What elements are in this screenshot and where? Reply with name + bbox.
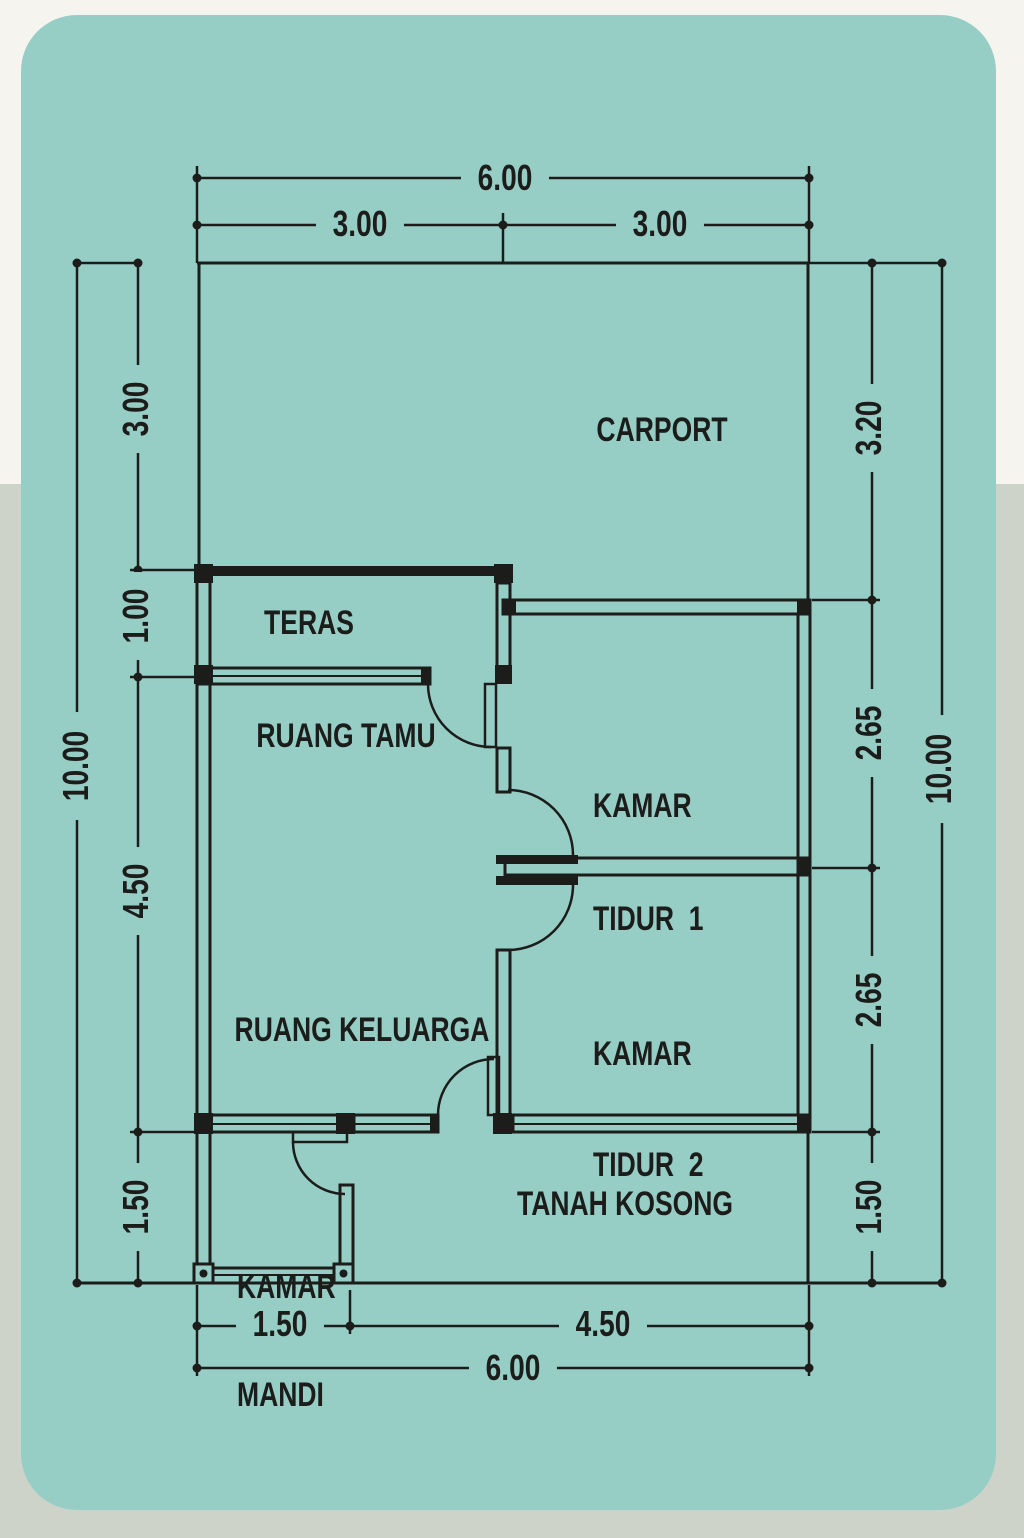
room-label-tanah-kosong: TANAH KOSONG xyxy=(486,1185,763,1223)
dim-right-c: 2.65 xyxy=(849,956,889,1044)
dim-bottom-left: 1.50 xyxy=(236,1304,324,1344)
dim-left-total: 10.00 xyxy=(56,712,96,820)
room-label-ruang-tamu: RUANG TAMU xyxy=(231,717,461,755)
dim-left-b: 1.00 xyxy=(116,572,156,660)
dim-right-b: 2.65 xyxy=(849,689,889,777)
page: CARPORT TERAS RUANG TAMU KAMAR TIDUR 1 K… xyxy=(0,0,1024,1538)
room-label-teras: TERAS xyxy=(251,604,366,642)
room-label-carport: CARPORT xyxy=(578,411,746,449)
dim-top-right: 3.00 xyxy=(616,204,704,244)
dim-top-total: 6.00 xyxy=(461,158,549,198)
dim-right-total: 10.00 xyxy=(919,715,959,823)
dim-left-a: 3.00 xyxy=(116,365,156,453)
dim-right-a: 3.20 xyxy=(849,384,889,472)
dim-left-d: 1.50 xyxy=(116,1163,156,1251)
dim-left-c: 4.50 xyxy=(116,847,156,935)
dim-bottom-total: 6.00 xyxy=(469,1348,557,1388)
dim-bottom-right: 4.50 xyxy=(559,1304,647,1344)
room-label-ruang-keluarga: RUANG KELUARGA xyxy=(199,1011,526,1049)
dim-right-d: 1.50 xyxy=(849,1163,889,1251)
dim-top-left: 3.00 xyxy=(316,204,404,244)
